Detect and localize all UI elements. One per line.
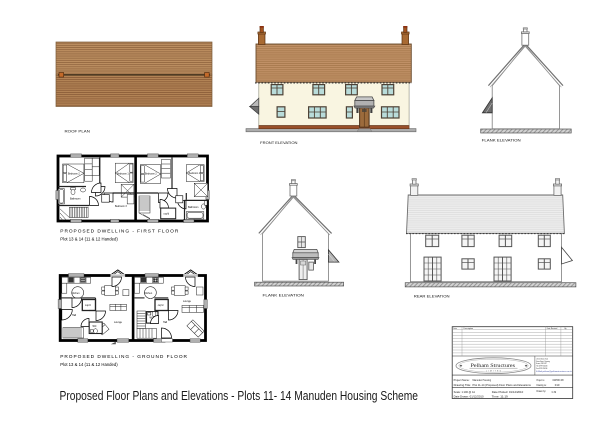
svg-text:Kitchen: Kitchen bbox=[72, 292, 81, 295]
svg-text:Hall: Hall bbox=[163, 321, 168, 324]
svg-text:Date Drawn: 01/12/2010: Date Drawn: 01/12/2010 bbox=[454, 395, 484, 399]
svg-text:C.M: C.M bbox=[552, 390, 557, 394]
svg-text:Bathroom: Bathroom bbox=[188, 206, 198, 209]
svg-text:ROOF PLAN: ROOF PLAN bbox=[65, 128, 91, 133]
svg-text:Lounge: Lounge bbox=[114, 321, 123, 324]
svg-text:Bedroom 2: Bedroom 2 bbox=[68, 173, 80, 176]
svg-text:Bathroom: Bathroom bbox=[70, 198, 80, 201]
svg-text:Fax 01799 550294: Fax 01799 550294 bbox=[536, 368, 547, 370]
svg-text:E-Mail pelham@pelhamstructures: E-Mail pelham@pelhamstructures.co.uk bbox=[536, 370, 572, 373]
svg-text:Drawn by:: Drawn by: bbox=[537, 389, 547, 393]
svg-text:Bedroom 2: Bedroom 2 bbox=[145, 173, 157, 176]
svg-text:Proposed Floor Plans and Eleva: Proposed Floor Plans and Elevations - Pl… bbox=[60, 388, 419, 403]
svg-text:Lounge: Lounge bbox=[183, 300, 192, 303]
svg-text:Bedroom 1: Bedroom 1 bbox=[117, 173, 129, 176]
svg-text:By: By bbox=[565, 328, 567, 330]
svg-text:cup'd: cup'd bbox=[158, 304, 164, 307]
svg-text:Scale: 1:100 @ A1: Scale: 1:100 @ A1 bbox=[454, 390, 476, 394]
svg-text:PROPOSED DWELLING - GROUND: PROPOSED DWELLING - GROUND FLOOR bbox=[60, 354, 187, 360]
svg-text:Description: Description bbox=[464, 327, 474, 330]
svg-text:PROPOSED DWELLING - FIRST FL: PROPOSED DWELLING - FIRST FLOOR bbox=[60, 229, 179, 235]
svg-text:Bedroom 1: Bedroom 1 bbox=[189, 172, 201, 175]
svg-text:Date Plotted: 01/12/2010: Date Plotted: 01/12/2010 bbox=[492, 390, 524, 394]
svg-text:Date Revised: Date Revised bbox=[547, 327, 558, 330]
svg-text:cup'd: cup'd bbox=[164, 213, 170, 216]
svg-text:cup'd: cup'd bbox=[85, 304, 91, 307]
svg-text:LIMITED: LIMITED bbox=[486, 370, 502, 372]
svg-text:FLANK ELEVATION: FLANK ELEVATION bbox=[263, 292, 305, 297]
svg-text:FLANK ELEVATION: FLANK ELEVATION bbox=[482, 138, 521, 143]
svg-text:Plot 11-14 (Proposed) Floor Pl: Plot 11-14 (Proposed) Floor Plans and El… bbox=[473, 383, 532, 387]
svg-text:Project Name:: Project Name: bbox=[454, 378, 470, 382]
svg-text:02/PRO.08: 02/PRO.08 bbox=[553, 378, 564, 382]
svg-text:FRONT ELEVATION: FRONT ELEVATION bbox=[260, 140, 297, 145]
svg-text:Hall: Hall bbox=[72, 314, 77, 317]
svg-text:Manuden Housing: Manuden Housing bbox=[473, 378, 492, 382]
svg-text:Drawing no:: Drawing no: bbox=[537, 383, 547, 387]
svg-text:WC: WC bbox=[93, 325, 97, 328]
svg-text:REAR ELEVATION: REAR ELEVATION bbox=[414, 294, 450, 299]
svg-text:Drawing Title:: Drawing Title: bbox=[454, 383, 472, 387]
svg-text:Project no:: Project no: bbox=[537, 378, 545, 382]
svg-text:Bedroom 3: Bedroom 3 bbox=[115, 205, 127, 208]
svg-text:Time: 11:19: Time: 11:19 bbox=[492, 395, 508, 399]
svg-text:Plot 13 & 14 (11 & 12 Handed): Plot 13 & 14 (11 & 12 Handed) bbox=[60, 237, 118, 242]
svg-text:Kitchen: Kitchen bbox=[144, 292, 153, 295]
svg-text:Plot 13 & 14 (11 & 12 Handed): Plot 13 & 14 (11 & 12 Handed) bbox=[60, 362, 118, 367]
svg-text:010: 010 bbox=[555, 383, 560, 387]
